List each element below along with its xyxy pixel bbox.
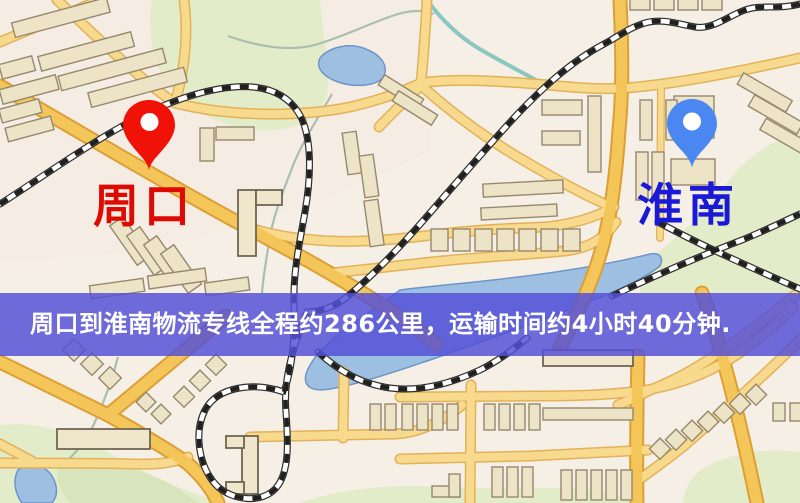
origin-pin-hole — [141, 113, 159, 131]
map-background: 周口 淮南 周口到淮南物流专线全程约286公里，运输时间约4小时40分钟. — [0, 0, 800, 503]
route-info-text: 周口到淮南物流专线全程约286公里，运输时间约4小时40分钟. — [30, 310, 731, 338]
destination-label: 淮南 — [637, 178, 739, 232]
origin-label: 周口 — [93, 179, 195, 233]
destination-pin-hole — [683, 113, 701, 131]
route-info-banner: 周口到淮南物流专线全程约286公里，运输时间约4小时40分钟. — [0, 293, 800, 356]
map-screenshot: 周口 淮南 周口到淮南物流专线全程约286公里，运输时间约4小时40分钟. — [0, 0, 800, 503]
